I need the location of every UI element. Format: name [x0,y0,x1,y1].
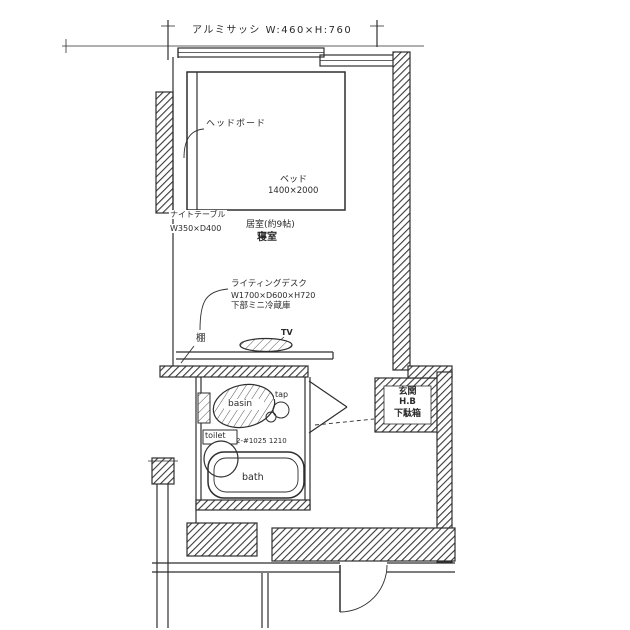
tv-label: TV [281,328,293,337]
corridor-lines [152,563,455,572]
wall-left-lower-block [152,458,174,484]
bed-size-label: 1400×2000 [268,187,318,197]
bath-label: bath [242,473,264,484]
entrance-label: 玄関 [375,387,440,397]
bathroom-shelf-fixture [198,393,210,423]
bath-size-label: 2-#1025 1210 [236,437,287,445]
bed-outline [187,72,345,210]
toilet-label: toilet [205,431,226,440]
room-size-label: 居室(約9帖) [246,220,295,230]
wall-right [393,52,410,370]
night-table-label: ナイトテーブル [169,210,227,219]
basin-label: basin [228,399,252,409]
bed-label: ベッド [280,175,307,185]
dashed-leader [315,419,374,425]
desk-note-label: 下部ミニ冷蔵庫 [231,302,291,312]
night-table-size-label: W350×D400 [169,224,222,233]
hb-label: H.B [375,398,440,408]
shelf-leader [181,346,194,363]
shoe-cabinet-label: 下駄箱 [375,409,440,419]
tv-fixture [240,339,292,352]
desk-leader [200,289,228,330]
floor-plan-linework [0,0,630,630]
entrance-box-labels: 玄関 H.B 下駄箱 [375,387,440,419]
desk-size-label: W1700×D600×H720 [231,291,315,300]
shelf-label: 棚 [196,334,206,345]
window-spec-label: アルミサッシ W:460×H:760 [192,25,352,37]
window-sash [178,48,398,66]
counter [176,352,333,359]
wall-left [156,92,173,213]
wall-bedroom-bottom [160,366,308,377]
wall-bottom-right [272,528,455,561]
wall-bottom-left [187,523,257,556]
entry-door-arc [340,565,387,612]
floor-plan: アルミサッシ W:460×H:760 ヘッドボード ベッド 1400×2000 … [0,0,630,630]
tap-label: tap [274,390,289,399]
room-name-label: 寝室 [257,232,277,244]
desk-label: ライティングデスク [231,280,307,290]
bathroom-door [309,381,347,433]
headboard-label: ヘッドボード [206,119,266,129]
